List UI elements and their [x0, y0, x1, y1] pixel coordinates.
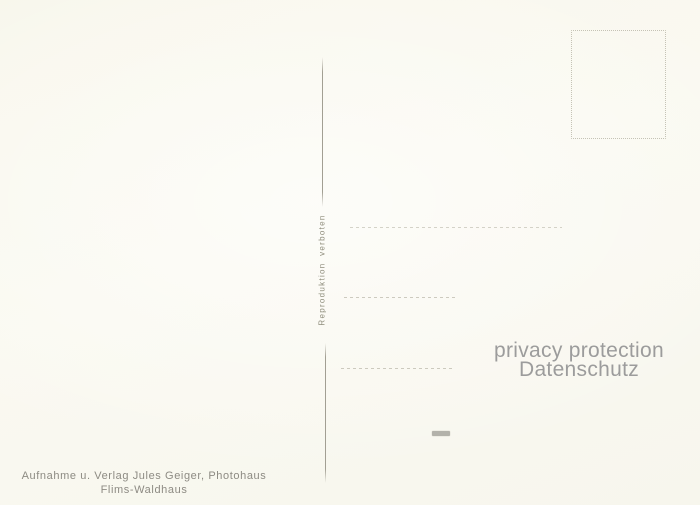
- address-line-3: [341, 368, 455, 369]
- privacy-watermark-line2: Datenschutz: [474, 360, 684, 379]
- address-line-1: [350, 227, 562, 228]
- stamp-box: [571, 30, 666, 139]
- postmark-smudge: [432, 431, 450, 436]
- address-line-2: [344, 297, 456, 298]
- divider-line-lower: [325, 343, 326, 483]
- publisher-credit-line1: Aufnahme u. Verlag Jules Geiger, Photoha…: [18, 470, 270, 484]
- privacy-watermark: privacy protection Datenschutz: [474, 341, 684, 379]
- publisher-credit: Aufnahme u. Verlag Jules Geiger, Photoha…: [18, 470, 270, 497]
- postcard-back: Reproduktion verboten Aufnahme u. Verlag…: [0, 0, 700, 505]
- publisher-credit-line2: Flims-Waldhaus: [18, 484, 270, 498]
- divider-line-upper: [322, 57, 323, 207]
- reproduction-notice: Reproduktion verboten: [318, 214, 327, 325]
